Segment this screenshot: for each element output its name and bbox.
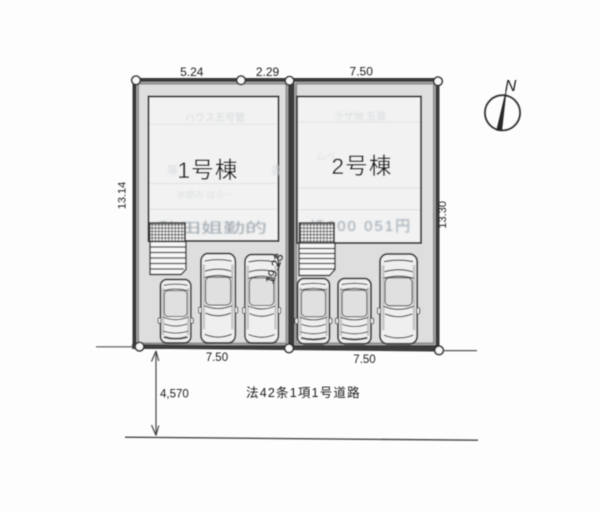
svg-text:法42条1項1号道路: 法42条1項1号道路 [246, 385, 361, 400]
svg-text:書: 書 [271, 163, 282, 177]
svg-text:7.50: 7.50 [350, 65, 374, 79]
svg-text:2号棟: 2号棟 [331, 154, 392, 179]
svg-text:7.50: 7.50 [353, 354, 375, 366]
svg-text:ラザ地 五質: ラザ地 五質 [334, 110, 387, 123]
svg-text:2.29: 2.29 [256, 65, 280, 79]
svg-text:13.30: 13.30 [437, 201, 449, 229]
svg-text:水御み はら一: 水御み はら一 [177, 189, 234, 200]
svg-text:ハウス五号管: ハウス五号管 [185, 111, 245, 124]
svg-text:7.50: 7.50 [206, 352, 228, 364]
svg-text:4,570: 4,570 [160, 389, 189, 401]
svg-text:1号棟: 1号棟 [177, 158, 238, 183]
svg-text:N: N [505, 78, 517, 95]
svg-text:5.24: 5.24 [180, 65, 204, 79]
svg-text:13.14: 13.14 [117, 182, 129, 210]
svg-text:等: 等 [167, 163, 178, 177]
